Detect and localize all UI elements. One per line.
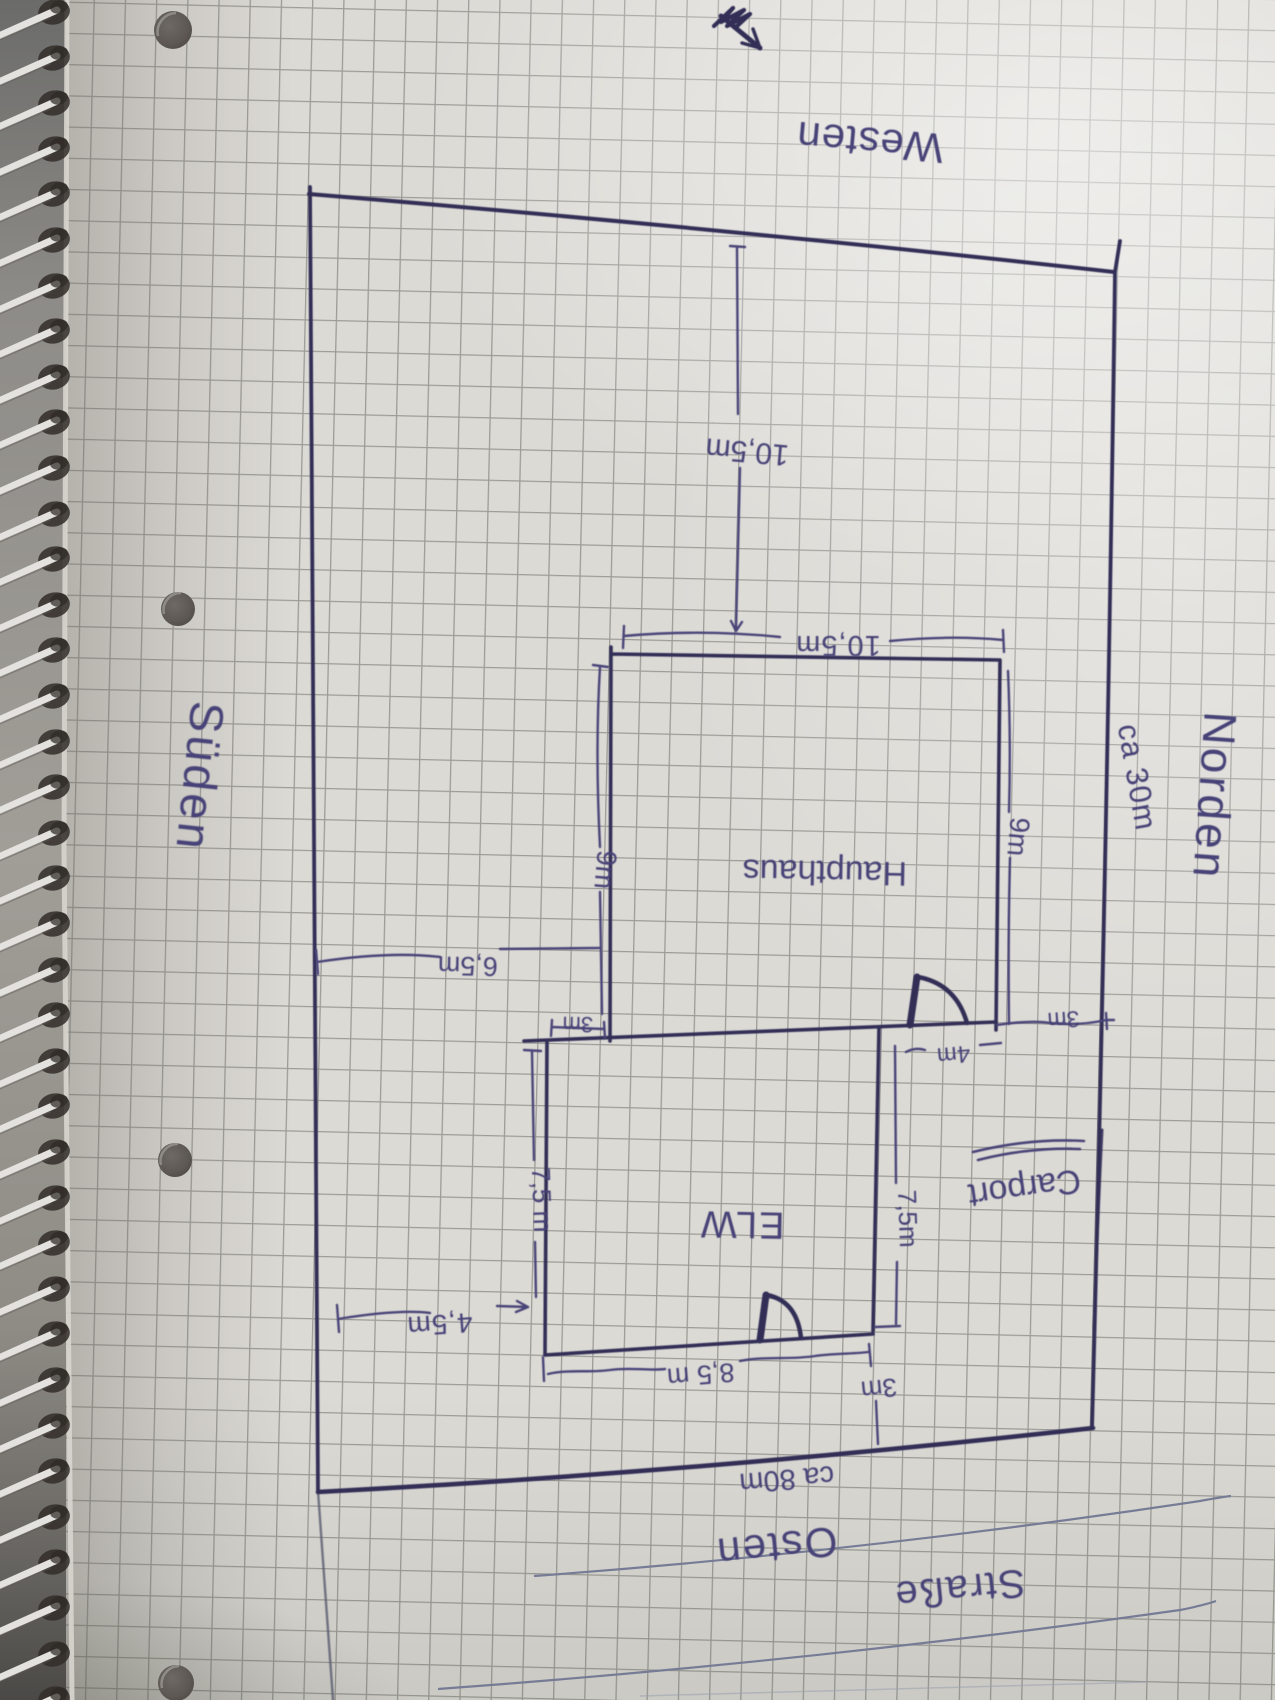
svg-text:8,5 m: 8,5 m — [666, 1357, 736, 1393]
svg-text:3m: 3m — [859, 1372, 898, 1406]
svg-text:4,5m: 4,5m — [406, 1307, 474, 1343]
svg-text:6,5m: 6,5m — [438, 950, 499, 981]
svg-text:9m: 9m — [1001, 816, 1035, 857]
svg-text:9m: 9m — [588, 849, 622, 890]
svg-text:7,5m: 7,5m — [892, 1189, 924, 1248]
svg-text:ELW: ELW — [699, 1202, 785, 1245]
svg-text:10,5m: 10,5m — [795, 629, 881, 661]
svg-text:7,5 m: 7,5 m — [526, 1167, 558, 1233]
svg-text:3m: 3m — [1047, 1006, 1081, 1034]
svg-text:4m: 4m — [936, 1040, 972, 1070]
svg-text:3m: 3m — [562, 1012, 593, 1038]
svg-text:Haupthaus: Haupthaus — [742, 852, 907, 893]
